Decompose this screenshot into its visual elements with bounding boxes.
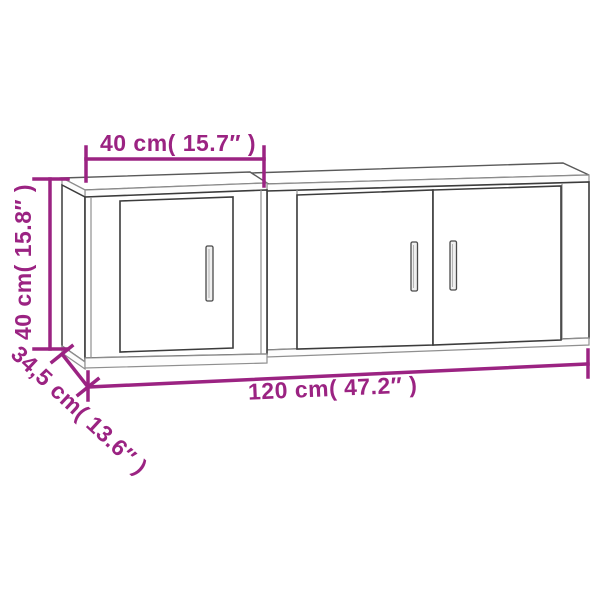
product-dimension-image: 40 cm( 15.7″ ) 40 cm( 15.8″ ) 34,5 cm( 1… — [0, 0, 600, 600]
left-cabinet-door-handle — [206, 246, 213, 301]
dimension-upper-width-label: 40 cm( 15.7″ ) — [100, 130, 256, 156]
left-cabinet — [62, 172, 267, 369]
right-cabinet — [250, 163, 589, 357]
right-cabinet-left-door-handle — [411, 242, 418, 291]
dimension-diagram: 40 cm( 15.7″ ) 40 cm( 15.8″ ) 34,5 cm( 1… — [0, 0, 600, 600]
right-cabinet-right-door-handle — [450, 241, 457, 290]
left-cabinet-door — [120, 197, 233, 352]
dimension-height-label: 40 cm( 15.8″ ) — [10, 184, 36, 340]
dimension-total-width-label: 120 cm( 47.2″ ) — [247, 371, 417, 404]
left-cabinet-side-panel — [62, 185, 85, 362]
